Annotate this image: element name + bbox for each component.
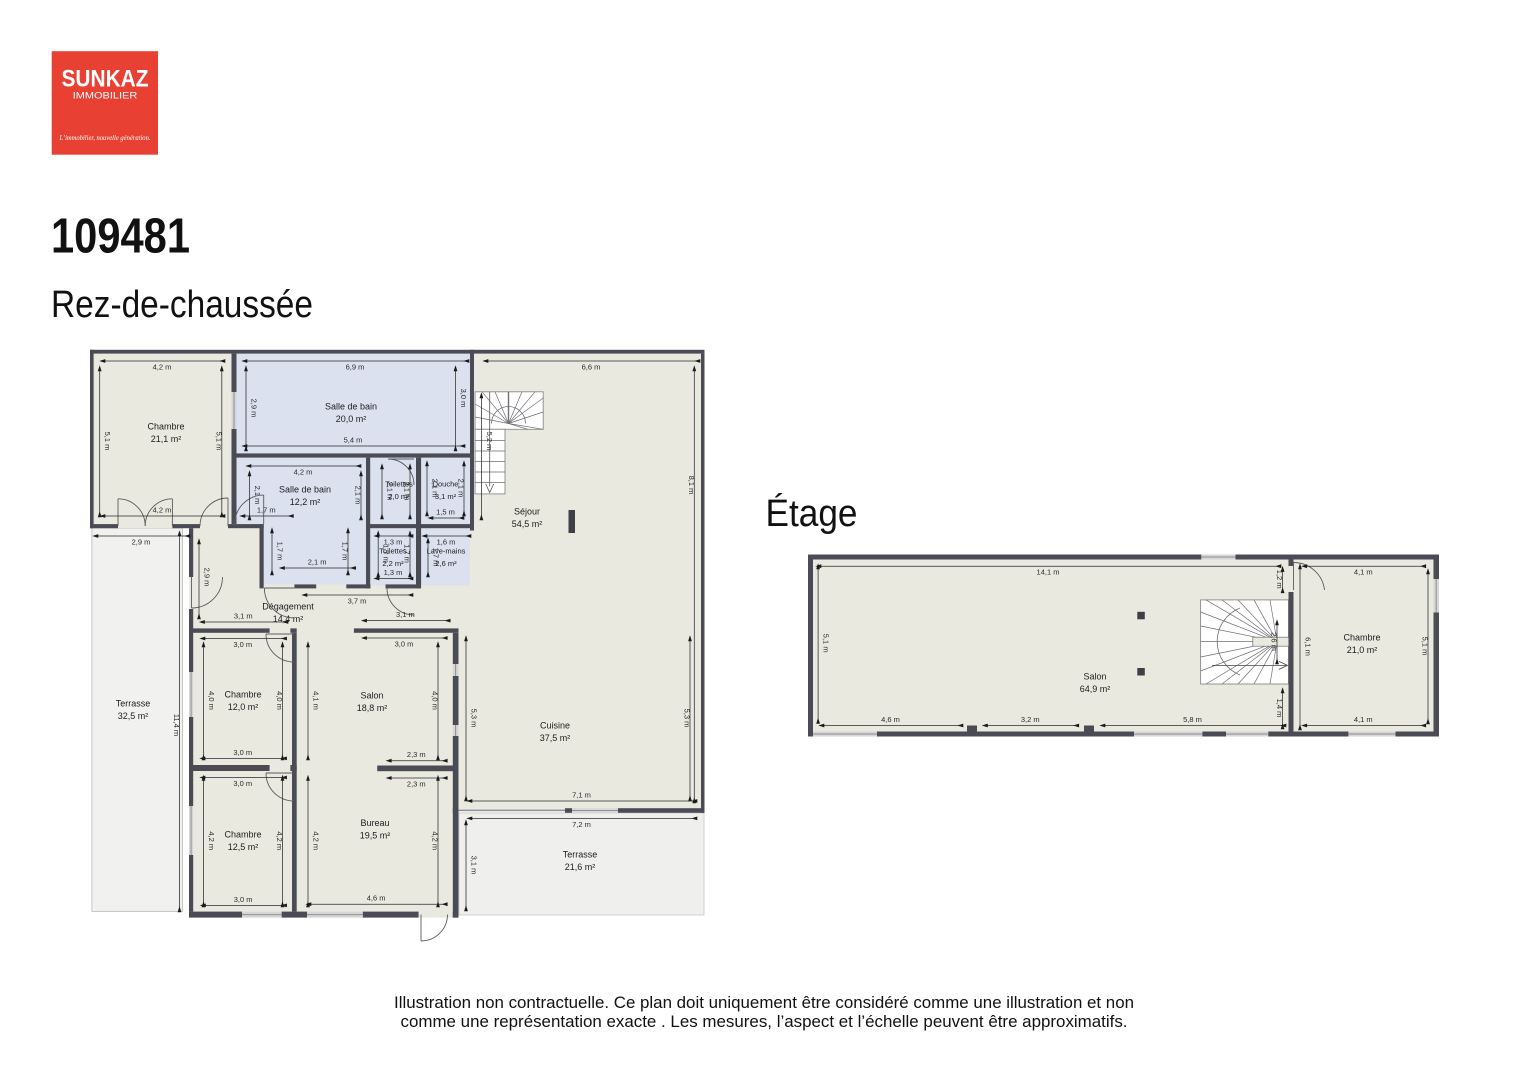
svg-text:3,0 m: 3,0 m <box>233 640 252 649</box>
svg-text:4,0 m: 4,0 m <box>275 691 284 710</box>
svg-text:2,1 m: 2,1 m <box>308 558 327 567</box>
svg-text:2,3 m: 2,3 m <box>407 780 426 789</box>
svg-text:4,2 m: 4,2 m <box>153 363 172 372</box>
svg-text:Chambre: Chambre <box>224 690 261 700</box>
svg-text:Cuisine: Cuisine <box>540 721 570 731</box>
svg-text:1,7 m: 1,7 m <box>341 542 350 561</box>
svg-text:2,9 m: 2,9 m <box>132 538 151 547</box>
svg-text:14,1 m: 14,1 m <box>1037 568 1060 577</box>
svg-text:21,1 m²: 21,1 m² <box>151 434 182 444</box>
svg-text:1,4 m: 1,4 m <box>1275 699 1284 718</box>
svg-text:1,7 m: 1,7 m <box>382 544 391 563</box>
svg-text:4,2 m: 4,2 m <box>431 831 440 850</box>
svg-text:54,5 m²: 54,5 m² <box>512 519 543 529</box>
svg-text:6,1 m: 6,1 m <box>1304 637 1313 656</box>
svg-text:1,2 m: 1,2 m <box>1275 570 1284 589</box>
svg-text:14,4 m²: 14,4 m² <box>273 614 304 624</box>
svg-text:11,4 m: 11,4 m <box>172 714 181 736</box>
svg-text:1,7 m: 1,7 m <box>432 548 441 567</box>
svg-text:64,9 m²: 64,9 m² <box>1080 684 1111 694</box>
svg-text:4,0 m: 4,0 m <box>207 691 216 710</box>
svg-text:Salle de bain: Salle de bain <box>325 402 377 412</box>
svg-text:4,0 m: 4,0 m <box>431 691 440 710</box>
svg-text:5,4 m: 5,4 m <box>344 436 363 445</box>
svg-text:Salon: Salon <box>360 691 383 701</box>
svg-text:4,1 m: 4,1 m <box>1354 568 1373 577</box>
svg-text:2,1 m: 2,1 m <box>354 486 363 505</box>
svg-text:Salon: Salon <box>1083 672 1106 682</box>
svg-text:5,3 m: 5,3 m <box>470 709 479 728</box>
svg-text:4,2 m: 4,2 m <box>312 831 321 850</box>
svg-text:1,7 m: 1,7 m <box>403 544 412 563</box>
svg-text:12,0 m²: 12,0 m² <box>228 702 259 712</box>
svg-text:12,2 m²: 12,2 m² <box>290 497 321 507</box>
svg-text:3,2 m: 3,2 m <box>1021 715 1040 724</box>
svg-text:8,1 m: 8,1 m <box>687 476 696 495</box>
svg-text:12,5 m²: 12,5 m² <box>228 842 259 852</box>
svg-text:2,9 m: 2,9 m <box>250 399 259 418</box>
svg-text:4,2 m: 4,2 m <box>294 468 313 477</box>
svg-text:7,1 m: 7,1 m <box>572 791 591 800</box>
svg-text:3,7 m: 3,7 m <box>348 597 367 606</box>
svg-text:20,0 m²: 20,0 m² <box>336 414 367 424</box>
svg-text:IMMOBILIER: IMMOBILIER <box>73 91 138 101</box>
svg-text:37,5 m²: 37,5 m² <box>540 733 571 743</box>
svg-text:3,0 m: 3,0 m <box>233 748 252 757</box>
svg-text:Séjour: Séjour <box>514 507 540 517</box>
svg-text:3,0 m: 3,0 m <box>234 895 253 904</box>
svg-text:Chambre: Chambre <box>147 422 184 432</box>
svg-text:2,1 m: 2,1 m <box>431 479 440 498</box>
svg-text:3,1 m: 3,1 m <box>234 612 253 621</box>
svg-text:1,3 m: 1,3 m <box>384 568 403 577</box>
svg-text:4,6 m: 4,6 m <box>881 715 900 724</box>
svg-text:Étage: Étage <box>766 492 858 535</box>
svg-text:4,2 m: 4,2 m <box>207 831 216 850</box>
svg-text:Illustration non contractuelle: Illustration non contractuelle. Ce plan … <box>394 993 1134 1012</box>
svg-text:4,1 m: 4,1 m <box>312 691 321 710</box>
svg-text:6,9 m: 6,9 m <box>346 363 365 372</box>
svg-text:5,1 m: 5,1 m <box>822 634 831 653</box>
svg-text:4,6 m: 4,6 m <box>367 894 386 903</box>
svg-text:6,6 m: 6,6 m <box>582 363 601 372</box>
svg-text:18,8 m²: 18,8 m² <box>357 703 388 713</box>
svg-text:Chambre: Chambre <box>1343 633 1380 643</box>
svg-text:comme une représentation exact: comme une représentation exacte . Les me… <box>401 1012 1128 1031</box>
svg-text:5,1 m: 5,1 m <box>1421 637 1430 656</box>
svg-text:3,0 m: 3,0 m <box>233 779 252 788</box>
svg-text:2,3 m: 2,3 m <box>407 750 426 759</box>
svg-text:3,1 m: 3,1 m <box>470 856 479 875</box>
svg-text:21,6 m²: 21,6 m² <box>565 862 596 872</box>
svg-text:3,0 m: 3,0 m <box>459 389 468 408</box>
svg-text:5,2 m: 5,2 m <box>485 432 494 451</box>
svg-text:Terrasse: Terrasse <box>116 699 151 709</box>
svg-text:1,3 m: 1,3 m <box>384 538 403 547</box>
svg-text:2,1 m: 2,1 m <box>457 479 466 498</box>
svg-text:2,1 m: 2,1 m <box>403 482 412 501</box>
svg-text:2,9 m: 2,9 m <box>203 568 212 587</box>
svg-text:Dégagement: Dégagement <box>262 602 314 612</box>
svg-text:1,7 m: 1,7 m <box>257 506 276 515</box>
svg-text:Chambre: Chambre <box>224 830 261 840</box>
svg-text:109481: 109481 <box>51 210 190 264</box>
svg-text:19,5 m²: 19,5 m² <box>360 831 391 841</box>
svg-text:7,2 m: 7,2 m <box>572 820 591 829</box>
svg-text:2,1 m: 2,1 m <box>386 482 395 501</box>
svg-text:5,1 m: 5,1 m <box>214 432 223 451</box>
svg-text:Terrasse: Terrasse <box>563 850 598 860</box>
svg-text:4,2 m: 4,2 m <box>275 831 284 850</box>
svg-text:Bureau: Bureau <box>360 818 389 828</box>
svg-text:1,7 m: 1,7 m <box>276 542 285 561</box>
svg-text:2,6 m: 2,6 m <box>1270 632 1279 651</box>
svg-text:1,6 m: 1,6 m <box>437 538 456 547</box>
svg-text:SUNKAZ: SUNKAZ <box>62 66 149 93</box>
svg-text:21,0 m²: 21,0 m² <box>1347 645 1378 655</box>
svg-text:5,1 m: 5,1 m <box>103 432 112 451</box>
svg-text:3,1 m: 3,1 m <box>396 610 415 619</box>
svg-text:1,5 m: 1,5 m <box>436 508 455 517</box>
svg-text:Rez-de-chaussée: Rez-de-chaussée <box>51 284 313 326</box>
svg-text:32,5 m²: 32,5 m² <box>118 711 149 721</box>
svg-text:2,1 m: 2,1 m <box>253 486 262 505</box>
svg-text:5,8 m: 5,8 m <box>1183 715 1202 724</box>
svg-text:L’immobilier, nouvelle générat: L’immobilier, nouvelle génération. <box>59 133 151 142</box>
svg-text:Salle de bain: Salle de bain <box>279 485 331 495</box>
svg-text:3,0 m: 3,0 m <box>395 640 414 649</box>
svg-text:4,1 m: 4,1 m <box>1354 715 1373 724</box>
svg-text:4,2 m: 4,2 m <box>153 506 172 515</box>
svg-text:5,3 m: 5,3 m <box>683 709 692 728</box>
